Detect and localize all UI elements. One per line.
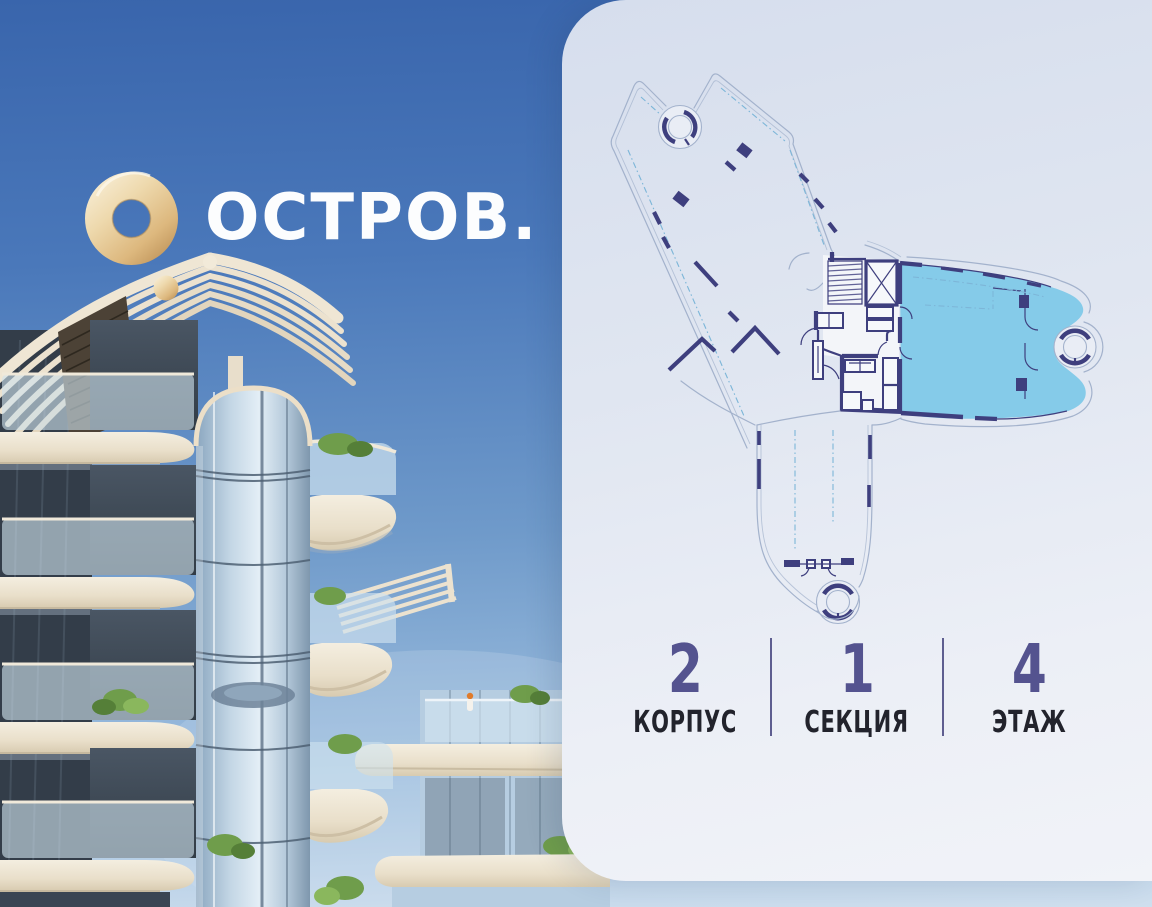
stat-section-label: СЕКЦИЯ <box>805 708 909 738</box>
stat-building: 2 КОРПУС <box>600 636 770 738</box>
apartment-stats: 2 КОРПУС 1 СЕКЦИЯ 4 ЭТАЖ <box>600 636 1114 738</box>
stat-building-value: 2 <box>668 636 703 703</box>
stat-divider <box>770 638 772 736</box>
stat-floor-label: ЭТАЖ <box>992 708 1066 738</box>
stat-building-label: КОРПУС <box>633 708 737 738</box>
stat-floor: 4 ЭТАЖ <box>944 636 1114 738</box>
stat-floor-value: 4 <box>1012 636 1047 703</box>
brand-logo[interactable]: ОСТРОВ. <box>84 170 504 306</box>
stat-section: 1 СЕКЦИЯ <box>772 636 942 738</box>
stat-section-value: 1 <box>840 636 875 703</box>
person-on-terrace <box>467 693 473 699</box>
page: ОСТРОВ. <box>0 0 1152 907</box>
brand-wordmark: ОСТРОВ. <box>205 181 538 255</box>
balcony-circle-top <box>659 106 702 149</box>
cantilever-balconies <box>295 433 396 843</box>
balcony-circle-bottom <box>817 581 860 624</box>
building-photo <box>0 0 610 907</box>
plan-panel: 2 КОРПУС 1 СЕКЦИЯ 4 ЭТАЖ <box>562 0 1152 881</box>
floor-plan <box>595 55 1125 655</box>
brand-mark-icon <box>84 170 184 306</box>
left-balconies <box>0 320 198 907</box>
stat-divider <box>942 638 944 736</box>
